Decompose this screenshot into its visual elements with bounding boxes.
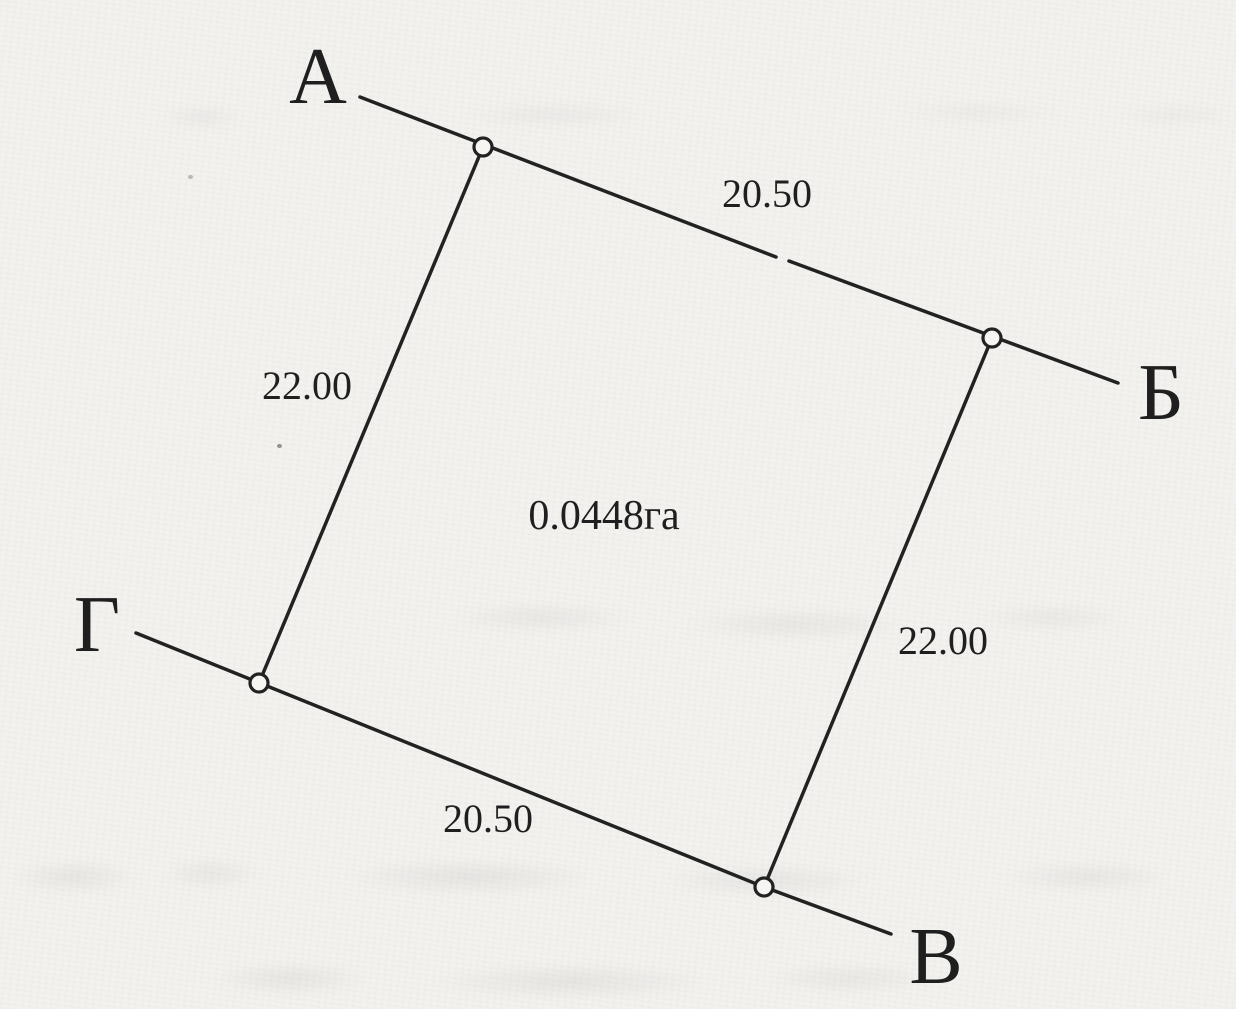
side-length-bottom: 20.50 [443, 799, 533, 839]
side-length-top: 20.50 [722, 174, 812, 214]
boundary-line-left [259, 147, 483, 683]
survey-point-v [755, 878, 773, 896]
vertex-label-a: А [289, 37, 347, 117]
boundary-line-bottom-extension [764, 887, 891, 934]
survey-point-b [983, 329, 1001, 347]
boundary-line-top-segment-2 [789, 261, 1118, 383]
area-label: 0.0448га [528, 495, 679, 537]
survey-point-a [474, 138, 492, 156]
vertex-label-b: Б [1138, 353, 1184, 433]
vertex-label-v: В [909, 917, 962, 997]
side-length-right: 22.00 [898, 621, 988, 661]
side-length-left: 22.00 [262, 366, 352, 406]
survey-point-g [250, 674, 268, 692]
boundary-line-bottom [136, 633, 764, 887]
boundary-line-right [764, 338, 992, 887]
vertex-label-g: Г [74, 585, 120, 665]
boundary-line-top-segment-1 [360, 97, 776, 257]
scanned-survey-sheet: А Б В Г 20.50 22.00 20.50 22.00 0.0448га [0, 0, 1236, 1009]
